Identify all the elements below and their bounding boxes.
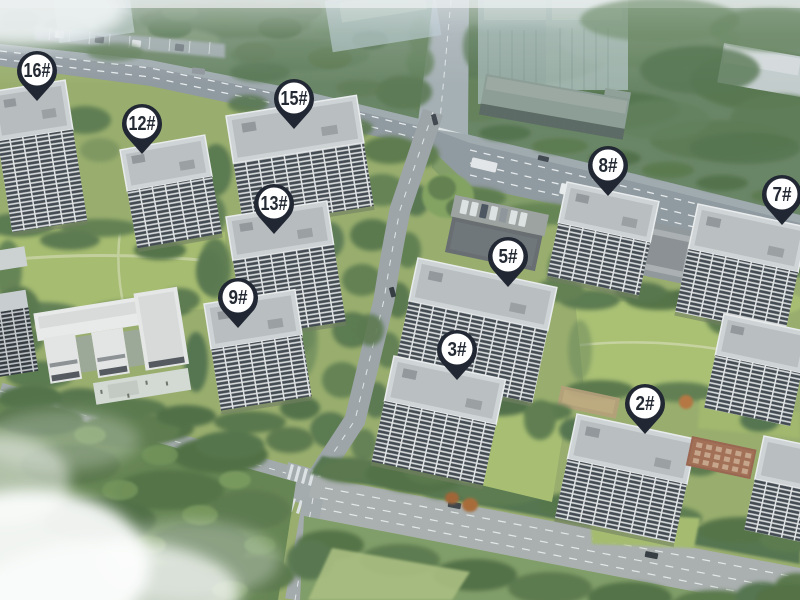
svg-text:8#: 8# <box>599 155 618 177</box>
svg-text:3#: 3# <box>448 339 467 361</box>
svg-text:2#: 2# <box>636 393 655 415</box>
svg-text:5#: 5# <box>499 246 518 268</box>
svg-text:13#: 13# <box>261 193 288 215</box>
svg-text:15#: 15# <box>281 88 308 110</box>
svg-text:12#: 12# <box>129 113 156 135</box>
svg-text:16#: 16# <box>24 60 51 82</box>
svg-text:9#: 9# <box>229 287 248 309</box>
svg-text:7#: 7# <box>773 184 792 206</box>
